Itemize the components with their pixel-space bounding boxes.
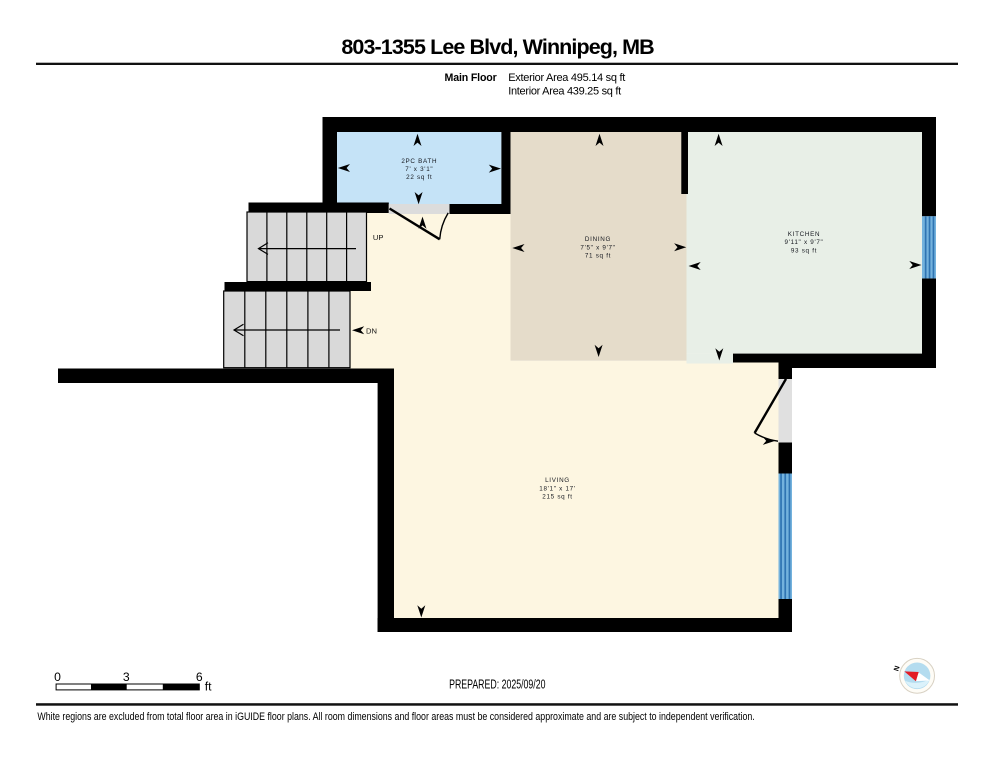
svg-text:7' x 3'1": 7' x 3'1" xyxy=(405,166,433,173)
svg-text:22 sq ft: 22 sq ft xyxy=(406,174,432,181)
svg-text:18'1" x 17': 18'1" x 17' xyxy=(539,485,576,492)
svg-text:803-1355 Lee Blvd, Winnipeg, M: 803-1355 Lee Blvd, Winnipeg, MB xyxy=(341,35,654,59)
svg-text:PREPARED: 2025/09/20: PREPARED: 2025/09/20 xyxy=(449,678,545,692)
svg-text:White regions are excluded fro: White regions are excluded from total fl… xyxy=(37,711,754,723)
svg-text:Interior Area 439.25 sq ft: Interior Area 439.25 sq ft xyxy=(508,86,621,98)
svg-text:2PC BATH: 2PC BATH xyxy=(401,158,437,165)
svg-text:DINING: DINING xyxy=(585,236,611,243)
svg-text:71 sq ft: 71 sq ft xyxy=(585,253,611,260)
svg-text:215 sq ft: 215 sq ft xyxy=(542,494,572,501)
svg-text:Main Floor: Main Floor xyxy=(445,72,497,84)
svg-text:DN: DN xyxy=(366,326,377,335)
svg-text:9'11" x 9'7": 9'11" x 9'7" xyxy=(785,239,824,246)
svg-text:ft: ft xyxy=(205,680,212,694)
svg-text:UP: UP xyxy=(373,233,384,242)
svg-text:LIVING: LIVING xyxy=(545,477,570,484)
svg-text:6: 6 xyxy=(196,670,203,684)
svg-text:3: 3 xyxy=(123,670,130,684)
svg-text:KITCHEN: KITCHEN xyxy=(788,231,821,238)
svg-text:0: 0 xyxy=(54,670,61,684)
svg-text:7'5" x 9'7": 7'5" x 9'7" xyxy=(580,244,615,251)
svg-text:Exterior Area 495.14 sq ft: Exterior Area 495.14 sq ft xyxy=(508,72,625,84)
svg-text:93 sq ft: 93 sq ft xyxy=(791,247,817,254)
